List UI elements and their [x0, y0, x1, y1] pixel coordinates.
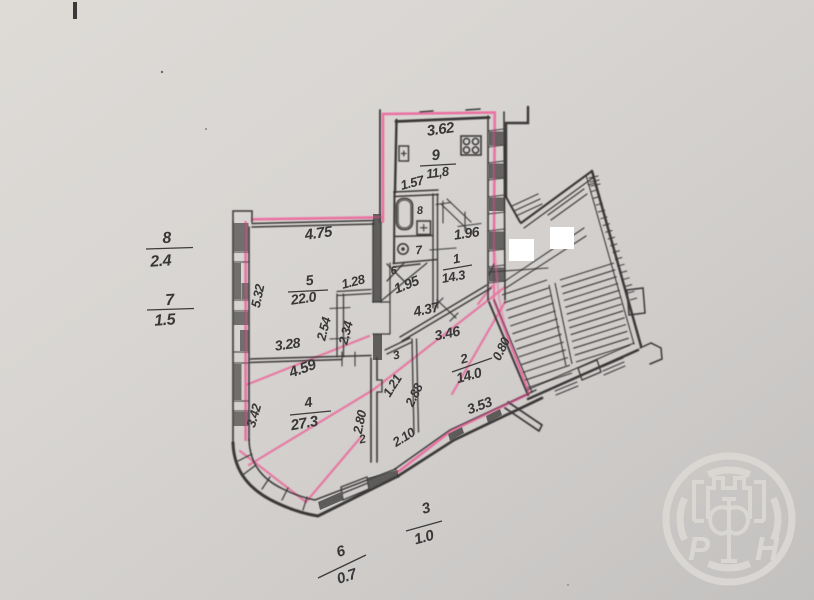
svg-text:H: H [755, 530, 780, 567]
svg-text:2.4: 2.4 [149, 252, 172, 271]
svg-text:1.5: 1.5 [154, 311, 177, 330]
svg-text:P: P [688, 530, 711, 567]
